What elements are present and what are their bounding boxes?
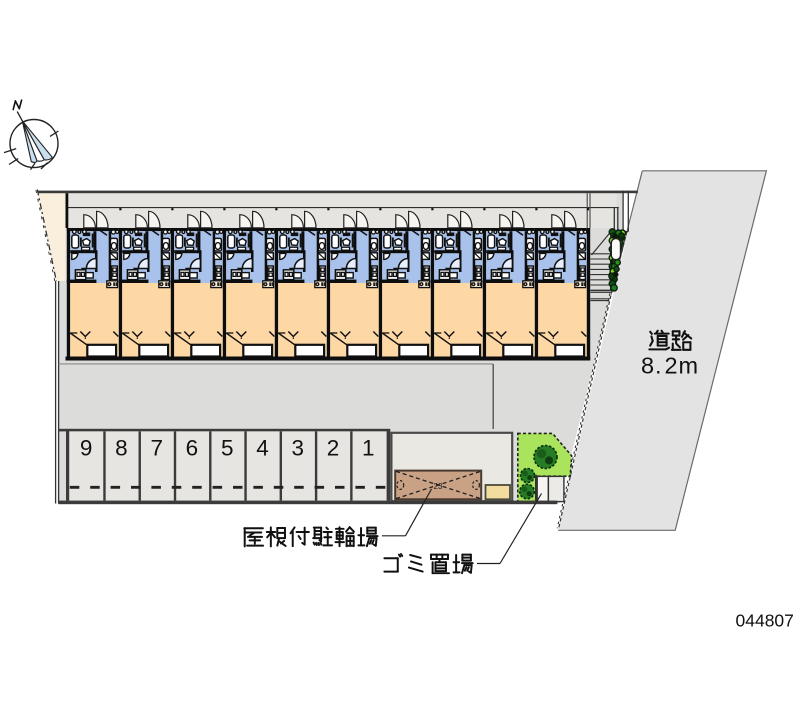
- svg-text:23: 23: [434, 482, 443, 491]
- svg-text:4: 4: [256, 435, 269, 460]
- svg-text:2: 2: [665, 353, 678, 379]
- svg-text:6: 6: [186, 435, 199, 460]
- svg-text:3: 3: [292, 435, 305, 460]
- svg-text:1: 1: [362, 435, 375, 460]
- svg-text:5: 5: [221, 435, 234, 460]
- svg-text:m: m: [679, 353, 699, 379]
- svg-text:2: 2: [327, 435, 340, 460]
- svg-text:.: .: [655, 353, 662, 379]
- svg-text:044807: 044807: [736, 611, 794, 631]
- svg-text:8: 8: [115, 435, 128, 460]
- svg-text:7: 7: [150, 435, 163, 460]
- svg-text:9: 9: [80, 435, 93, 460]
- svg-text:8: 8: [641, 353, 654, 379]
